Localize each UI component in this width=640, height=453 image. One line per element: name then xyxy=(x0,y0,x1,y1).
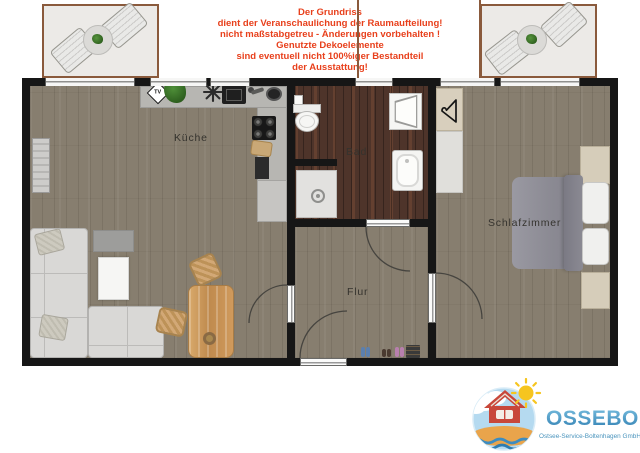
bath-door-arc xyxy=(366,227,410,271)
entrance-door-arc xyxy=(300,311,347,358)
company-subtitle: Ostsee-Service-Boltenhagen GmbH xyxy=(539,433,640,440)
sun-icon xyxy=(519,386,534,401)
bedroom-door-arc xyxy=(436,273,482,319)
beach-sand xyxy=(471,426,537,446)
living-door-arc xyxy=(249,285,287,323)
company-logo-emblem xyxy=(460,378,552,453)
company-name: OSSEBO xyxy=(546,407,639,431)
room-label-kitchen: Küche xyxy=(174,132,208,144)
room-label-bedroom: Schlafzimmer xyxy=(488,217,561,229)
room-label-bath: Bad xyxy=(346,146,367,158)
floorplan-page: Der Grundriss dient der Veranschaulichun… xyxy=(0,0,640,453)
room-label-hall: Flur xyxy=(347,286,368,298)
